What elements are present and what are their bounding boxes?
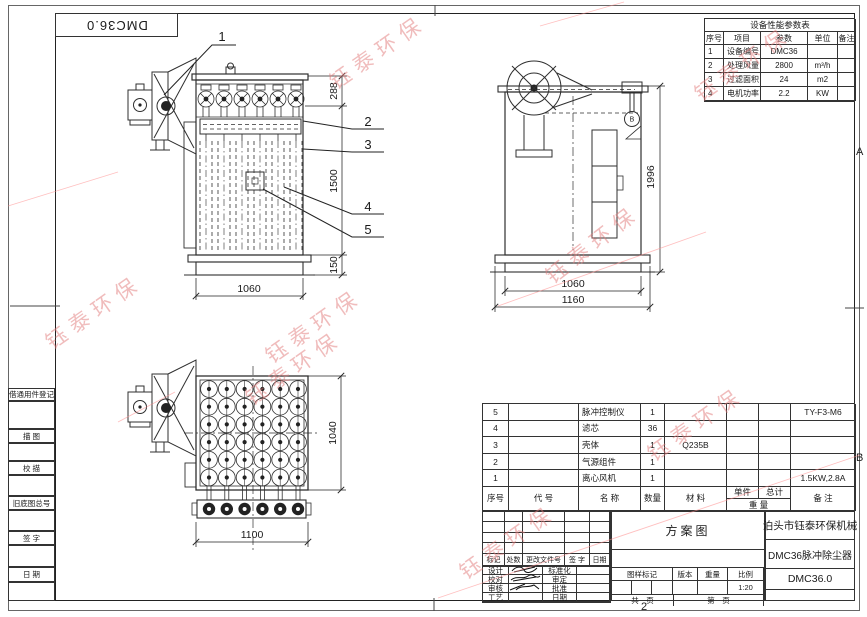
bom-cell: 1 (483, 470, 509, 487)
param-cell: 24 (761, 73, 808, 87)
bom-cell (727, 470, 759, 487)
param-cell: m2 (808, 73, 838, 87)
param-cell: m³/h (808, 59, 838, 73)
bom-cell: 1 (641, 437, 665, 454)
bom-cell (509, 421, 579, 438)
bom-cell (727, 454, 759, 471)
sign-label: 日期 (543, 593, 577, 602)
bom-cell (759, 454, 791, 471)
stamp-cell (632, 581, 652, 595)
margin-label-signature: 签 字 (8, 531, 55, 545)
revision-cell (523, 543, 565, 554)
stamp-cell (612, 581, 632, 595)
stamp-header: 比例 (728, 568, 764, 581)
bom-header: 代 号 (509, 487, 579, 511)
bom-header-total-weight: 总计 (759, 487, 790, 498)
pages-total: 共 页 (612, 595, 674, 606)
margin-empty-cell (8, 443, 55, 461)
bom-cell: 36 (641, 421, 665, 438)
param-cell: 4 (705, 87, 724, 101)
bom-cell (791, 421, 856, 438)
param-cell: 2 (705, 59, 724, 73)
bom-cell (759, 421, 791, 438)
margin-label-trace-check: 校 描 (8, 461, 55, 475)
param-table-title: 设备性能参数表 (705, 19, 856, 32)
sign-cell (509, 593, 543, 602)
company-name: 泊头市钰泰环保机械 (766, 511, 854, 540)
bom-cell (791, 437, 856, 454)
revision-cell (483, 522, 505, 533)
scale-value: 1:20 (728, 581, 764, 595)
sign-label: 校对 (483, 575, 509, 584)
revision-cell (523, 533, 565, 543)
sign-label: 标准化 (543, 566, 577, 575)
param-header: 项目 (724, 32, 761, 45)
revision-cell (483, 511, 505, 522)
revision-cell (565, 522, 590, 533)
bom-cell: 滤芯 (579, 421, 641, 438)
revision-cell (565, 511, 590, 522)
bom-cell: 脉冲控制仪 (579, 404, 641, 421)
param-cell (838, 45, 856, 59)
title-empty-row (612, 550, 764, 568)
bom-cell: 离心风机 (579, 470, 641, 487)
performance-parameter-table: 设备性能参数表 序号 项目 参数 单位 备注 1 设备编号 DMC36 2 处理… (704, 18, 855, 102)
param-cell (838, 87, 856, 101)
corner-drawing-number: DMC36.0 (86, 18, 148, 33)
bom-cell: 1.5KW,2.8A (791, 470, 856, 487)
revision-cell (590, 533, 610, 543)
margin-empty-cell (8, 582, 55, 601)
param-cell (838, 73, 856, 87)
param-cell: 电机功率 (724, 87, 761, 101)
bom-header: 材 料 (665, 487, 727, 511)
revision-cell (505, 543, 523, 554)
sign-cell (577, 566, 610, 575)
bom-cell (727, 437, 759, 454)
bom-cell (665, 421, 727, 438)
bom-cell (727, 404, 759, 421)
margin-label-date: 日 期 (8, 567, 55, 582)
title-block-middle: 方案图 图样标记 版本 重量 比例 1:20 共 页 第 页 (611, 510, 765, 601)
revision-cell (523, 522, 565, 533)
bom-cell: 4 (483, 421, 509, 438)
bom-cell (509, 437, 579, 454)
sign-label: 审定 (543, 575, 577, 584)
sign-cell (577, 593, 610, 602)
bom-cell (665, 470, 727, 487)
bom-cell: 3 (483, 437, 509, 454)
bom-cell (509, 470, 579, 487)
param-cell: 处理风量 (724, 59, 761, 73)
bom-cell: 气源组件 (579, 454, 641, 471)
margin-label-old-base-no: 旧底图总号 (8, 496, 55, 510)
stamp-cell (652, 581, 673, 595)
bom-table: 5 脉冲控制仪 1 TY-F3-M6 4 滤芯 36 3 壳体 1 Q235B … (482, 403, 855, 512)
param-cell: 2.2 (761, 87, 808, 101)
revision-cell (565, 533, 590, 543)
bom-header: 名 称 (579, 487, 641, 511)
stamp-cell (673, 581, 698, 595)
title-block-right: 泊头市钰泰环保机械 DMC36脉冲除尘器 DMC36.0 (765, 510, 855, 601)
param-header: 序号 (705, 32, 724, 45)
bom-cell: TY-F3-M6 (791, 404, 856, 421)
sign-cell (577, 575, 610, 584)
sign-label: 设计 (483, 566, 509, 575)
bom-cell (759, 437, 791, 454)
stamp-cell (698, 581, 728, 595)
sign-cell (509, 584, 543, 593)
revision-cell (505, 522, 523, 533)
stamp-header: 版本 (673, 568, 698, 581)
param-cell (838, 59, 856, 73)
stamp-header: 图样标记 (612, 568, 673, 581)
bom-cell: 壳体 (579, 437, 641, 454)
param-cell: DMC36 (761, 45, 808, 59)
margin-empty-cell (8, 510, 55, 531)
revision-cell (505, 533, 523, 543)
param-header: 单位 (808, 32, 838, 45)
bom-cell: 1 (641, 454, 665, 471)
bom-header: 数量 (641, 487, 665, 511)
bom-cell (509, 404, 579, 421)
corner-reference-box: DMC36.0 (55, 13, 178, 37)
bom-cell: Q235B (665, 437, 727, 454)
revision-cell (523, 511, 565, 522)
bom-cell (509, 454, 579, 471)
revision-cell (590, 511, 610, 522)
signature-table: 设计 标准化 校对 审定 审核 批准 工艺 日期 (482, 565, 611, 603)
product-name: DMC36脉冲除尘器 (766, 540, 854, 569)
drawing-number: DMC36.0 (766, 569, 854, 590)
bom-cell (727, 421, 759, 438)
revision-cell (505, 511, 523, 522)
title-empty-cell (766, 590, 854, 603)
drawing-sheet: DMC36.0 借通用件登记 描 图 校 描 旧底图总号 签 字 日 期 A B… (0, 0, 867, 617)
bom-header: 备 注 (791, 487, 856, 511)
sign-cell (509, 566, 543, 575)
margin-empty-cell (8, 545, 55, 567)
margin-empty-cell (8, 401, 55, 429)
revision-cell (483, 543, 505, 554)
bom-cell (665, 454, 727, 471)
sign-label: 审核 (483, 584, 509, 593)
sign-cell (509, 575, 543, 584)
revision-cell (590, 543, 610, 554)
param-cell (808, 45, 838, 59)
revision-cell (483, 533, 505, 543)
bom-header: 序号 (483, 487, 509, 511)
bom-cell (791, 454, 856, 471)
bom-cell: 1 (641, 470, 665, 487)
param-cell: 过滤面积 (724, 73, 761, 87)
zone-marker-b: B (856, 452, 863, 464)
bom-cell: 5 (483, 404, 509, 421)
param-cell: 1 (705, 45, 724, 59)
stamp-header: 重量 (698, 568, 728, 581)
sign-cell (577, 584, 610, 593)
param-cell: 3 (705, 73, 724, 87)
bom-cell (665, 404, 727, 421)
bom-header-unit-weight: 单件 (727, 487, 759, 498)
revision-cell (590, 522, 610, 533)
sign-label: 批准 (543, 584, 577, 593)
bom-cell: 2 (483, 454, 509, 471)
param-cell: KW (808, 87, 838, 101)
revision-table: 标记 处数 更改文件号 签 字 日期 (482, 510, 611, 567)
bom-cell (759, 470, 791, 487)
bom-header-weight: 单件 总计 重 量 (727, 487, 791, 511)
param-header: 参数 (761, 32, 808, 45)
param-cell: 设备编号 (724, 45, 761, 59)
zone-marker-a: A (856, 146, 863, 158)
document-type: 方案图 (612, 511, 764, 550)
bom-cell (759, 404, 791, 421)
sign-label: 工艺 (483, 593, 509, 602)
margin-label-reuse-register: 借通用件登记 (8, 388, 55, 401)
margin-label-tracing: 描 图 (8, 429, 55, 443)
param-header: 备注 (838, 32, 856, 45)
bom-cell: 1 (641, 404, 665, 421)
margin-empty-cell (8, 475, 55, 496)
param-cell: 2800 (761, 59, 808, 73)
revision-cell (565, 543, 590, 554)
pages-number: 第 页 (674, 595, 764, 606)
